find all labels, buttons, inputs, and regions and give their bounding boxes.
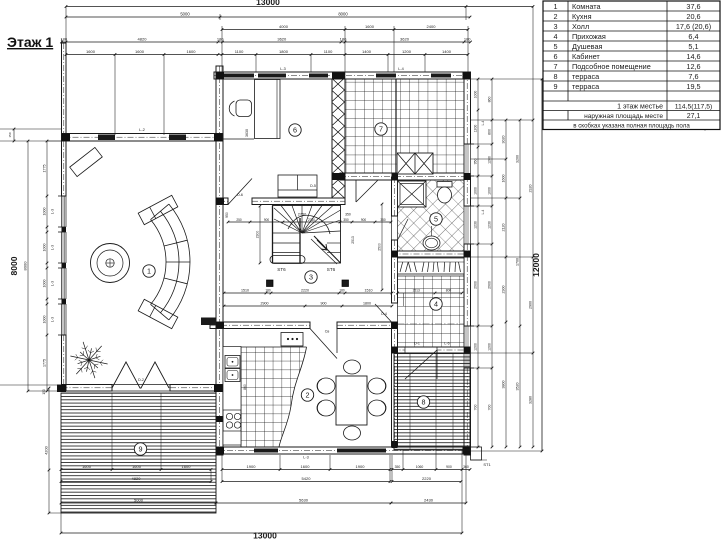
svg-text:180: 180 — [339, 289, 345, 293]
svg-text:Этаж 1: Этаж 1 — [7, 34, 53, 50]
svg-text:3620: 3620 — [277, 37, 287, 42]
svg-text:1513: 1513 — [413, 289, 421, 293]
svg-text:L-3: L-3 — [51, 317, 55, 322]
svg-text:1900: 1900 — [356, 464, 366, 469]
svg-text:1060: 1060 — [416, 465, 424, 469]
svg-text:3520: 3520 — [516, 383, 520, 391]
svg-text:6: 6 — [553, 52, 557, 61]
svg-text:2900: 2900 — [261, 302, 269, 306]
svg-text:1400: 1400 — [442, 49, 452, 54]
svg-text:1000: 1000 — [43, 208, 47, 216]
svg-text:Св: Св — [325, 330, 330, 334]
svg-text:7: 7 — [379, 125, 383, 134]
svg-text:114,5(117,5): 114,5(117,5) — [675, 104, 713, 111]
svg-text:1600: 1600 — [82, 464, 92, 469]
svg-text:8000: 8000 — [338, 12, 348, 17]
svg-text:3620: 3620 — [400, 37, 410, 42]
svg-text:2900: 2900 — [488, 281, 492, 289]
svg-text:3: 3 — [553, 22, 557, 31]
svg-text:L-4: L-4 — [398, 67, 404, 71]
svg-text:4820: 4820 — [138, 37, 148, 42]
svg-text:350: 350 — [380, 218, 386, 222]
svg-text:1230: 1230 — [474, 221, 478, 229]
svg-text:1800: 1800 — [279, 49, 289, 54]
svg-text:950: 950 — [474, 159, 478, 165]
svg-text:ST1: ST1 — [483, 462, 491, 467]
svg-text:5000: 5000 — [134, 498, 144, 503]
svg-text:800: 800 — [488, 129, 492, 135]
svg-text:180: 180 — [340, 37, 347, 42]
svg-text:6,4: 6,4 — [688, 32, 698, 41]
svg-text:27,1: 27,1 — [687, 113, 701, 120]
svg-text:1775: 1775 — [43, 359, 47, 367]
svg-text:3: 3 — [309, 273, 313, 282]
svg-text:860: 860 — [488, 97, 492, 103]
svg-text:L-4: L-4 — [481, 209, 485, 214]
svg-text:12000: 12000 — [531, 253, 541, 277]
svg-text:860: 860 — [243, 384, 247, 390]
svg-text:13000: 13000 — [256, 0, 280, 7]
svg-text:1700: 1700 — [516, 258, 520, 266]
svg-text:2900: 2900 — [529, 301, 533, 309]
svg-text:2750: 2750 — [308, 218, 315, 222]
svg-text:ST6: ST6 — [327, 267, 336, 272]
svg-text:1: 1 — [147, 267, 151, 276]
svg-text:1600: 1600 — [86, 49, 96, 54]
svg-text:37,6: 37,6 — [686, 2, 700, 11]
svg-text:4820: 4820 — [132, 476, 142, 481]
svg-text:2220: 2220 — [422, 476, 432, 481]
svg-text:3800: 3800 — [502, 381, 506, 389]
svg-text:180: 180 — [217, 37, 224, 42]
svg-text:800: 800 — [446, 289, 452, 293]
svg-text:1400: 1400 — [362, 49, 372, 54]
svg-text:900: 900 — [446, 465, 452, 469]
svg-text:Прихожая: Прихожая — [572, 32, 606, 41]
svg-text:Подсобное помещение: Подсобное помещение — [572, 62, 651, 71]
svg-text:2120: 2120 — [502, 224, 506, 232]
svg-text:1510: 1510 — [365, 289, 373, 293]
svg-text:250: 250 — [236, 218, 242, 222]
svg-text:2430: 2430 — [424, 498, 434, 503]
svg-text:Кухня: Кухня — [572, 12, 592, 21]
svg-text:L-2: L-2 — [139, 127, 146, 132]
svg-text:L-4: L-4 — [481, 120, 485, 125]
svg-text:2300: 2300 — [256, 231, 260, 239]
svg-text:2: 2 — [553, 12, 557, 21]
svg-text:Душевая: Душевая — [572, 42, 603, 51]
svg-text:1 этаж местье: 1 этаж местье — [617, 104, 663, 111]
svg-text:2400: 2400 — [427, 24, 437, 29]
svg-text:1000: 1000 — [43, 280, 47, 288]
svg-text:D-2: D-2 — [138, 378, 144, 382]
svg-text:700: 700 — [474, 405, 478, 411]
svg-text:2320: 2320 — [529, 185, 533, 193]
svg-text:13000: 13000 — [253, 531, 277, 541]
svg-text:4: 4 — [434, 300, 438, 309]
svg-text:1200: 1200 — [474, 343, 478, 351]
svg-text:180: 180 — [265, 289, 271, 293]
svg-text:2750: 2750 — [298, 213, 306, 217]
svg-text:в скобках указана полная площа: в скобках указана полная площадь пола — [573, 122, 690, 129]
svg-text:8000: 8000 — [9, 256, 19, 275]
svg-text:L-3: L-3 — [51, 245, 55, 250]
svg-text:4: 4 — [553, 32, 557, 41]
svg-text:2513: 2513 — [351, 236, 355, 244]
svg-text:терраса: терраса — [572, 82, 600, 91]
svg-text:1600: 1600 — [135, 49, 145, 54]
svg-text:8: 8 — [553, 72, 557, 81]
svg-text:2500: 2500 — [378, 243, 382, 251]
svg-text:5630: 5630 — [299, 498, 309, 503]
svg-text:1000: 1000 — [43, 316, 47, 324]
svg-text:Холл: Холл — [572, 22, 589, 31]
svg-text:17,6 (20,6): 17,6 (20,6) — [676, 22, 711, 31]
svg-text:D-1: D-1 — [414, 342, 420, 346]
svg-text:1200: 1200 — [488, 343, 492, 351]
svg-text:1775: 1775 — [43, 165, 47, 173]
svg-text:3280: 3280 — [529, 396, 533, 404]
svg-text:900: 900 — [361, 218, 367, 222]
svg-text:350: 350 — [343, 218, 349, 222]
svg-text:1600: 1600 — [365, 24, 375, 29]
svg-text:L-3: L-3 — [303, 456, 309, 460]
svg-text:наружная площадь месте: наружная площадь месте — [584, 113, 663, 120]
svg-text:1000: 1000 — [43, 244, 47, 252]
svg-text:1000: 1000 — [474, 187, 478, 195]
svg-text:5,1: 5,1 — [688, 42, 698, 51]
svg-text:2: 2 — [306, 391, 310, 400]
svg-text:6: 6 — [293, 126, 297, 135]
svg-text:L-3: L-3 — [51, 209, 55, 214]
svg-text:7,6: 7,6 — [688, 72, 698, 81]
svg-text:150: 150 — [8, 132, 12, 137]
svg-text:900: 900 — [321, 302, 327, 306]
svg-text:1600: 1600 — [132, 464, 142, 469]
svg-text:1600: 1600 — [502, 175, 506, 183]
svg-text:ST6: ST6 — [277, 267, 286, 272]
svg-text:L-6: L-6 — [444, 342, 449, 346]
svg-text:19,5: 19,5 — [686, 82, 700, 91]
svg-text:3020: 3020 — [502, 136, 506, 144]
svg-text:Кабинет: Кабинет — [572, 52, 600, 61]
svg-text:3630: 3630 — [245, 129, 249, 137]
svg-text:350: 350 — [345, 213, 351, 217]
svg-text:D-5: D-5 — [310, 184, 316, 188]
svg-text:2900: 2900 — [474, 281, 478, 289]
svg-text:1230: 1230 — [488, 221, 492, 229]
svg-text:12,6: 12,6 — [686, 62, 700, 71]
svg-text:8: 8 — [422, 398, 426, 407]
svg-text:2220: 2220 — [301, 289, 309, 293]
svg-text:1200: 1200 — [488, 156, 492, 164]
svg-text:180: 180 — [464, 37, 471, 42]
svg-text:1000: 1000 — [474, 91, 478, 99]
svg-text:1200: 1200 — [402, 49, 412, 54]
svg-text:950: 950 — [225, 212, 229, 218]
svg-text:Комната: Комната — [572, 2, 602, 11]
svg-text:5: 5 — [553, 42, 557, 51]
svg-text:1100: 1100 — [235, 49, 244, 54]
svg-text:9: 9 — [139, 445, 143, 454]
svg-text:1510: 1510 — [241, 289, 249, 293]
svg-text:1: 1 — [553, 2, 557, 11]
svg-text:1800: 1800 — [363, 302, 371, 306]
svg-text:700: 700 — [488, 405, 492, 411]
svg-text:5420: 5420 — [302, 476, 312, 481]
svg-text:2300: 2300 — [502, 286, 506, 294]
svg-text:900: 900 — [264, 218, 270, 222]
svg-text:1200: 1200 — [474, 125, 478, 133]
svg-text:150: 150 — [42, 389, 46, 395]
svg-text:5000: 5000 — [180, 12, 190, 17]
svg-text:9: 9 — [553, 82, 557, 91]
svg-text:14,6: 14,6 — [686, 52, 700, 61]
svg-text:1900: 1900 — [247, 464, 257, 469]
svg-text:8000: 8000 — [23, 261, 28, 271]
svg-text:1000: 1000 — [488, 187, 492, 195]
svg-text:L-3: L-3 — [280, 67, 286, 71]
svg-text:4000: 4000 — [279, 24, 289, 29]
svg-text:350: 350 — [395, 465, 401, 469]
svg-text:1600: 1600 — [182, 464, 192, 469]
svg-text:D-6: D-6 — [237, 193, 243, 197]
svg-text:1600: 1600 — [301, 464, 311, 469]
svg-text:4200: 4200 — [45, 446, 49, 454]
svg-text:1600: 1600 — [187, 49, 197, 54]
svg-text:терраса: терраса — [572, 72, 600, 81]
svg-text:5: 5 — [434, 215, 438, 224]
svg-text:20,6: 20,6 — [686, 12, 700, 21]
svg-text:7: 7 — [553, 62, 557, 71]
svg-text:1100: 1100 — [324, 49, 333, 54]
svg-text:3200: 3200 — [516, 155, 520, 163]
svg-text:L-3: L-3 — [51, 281, 55, 286]
